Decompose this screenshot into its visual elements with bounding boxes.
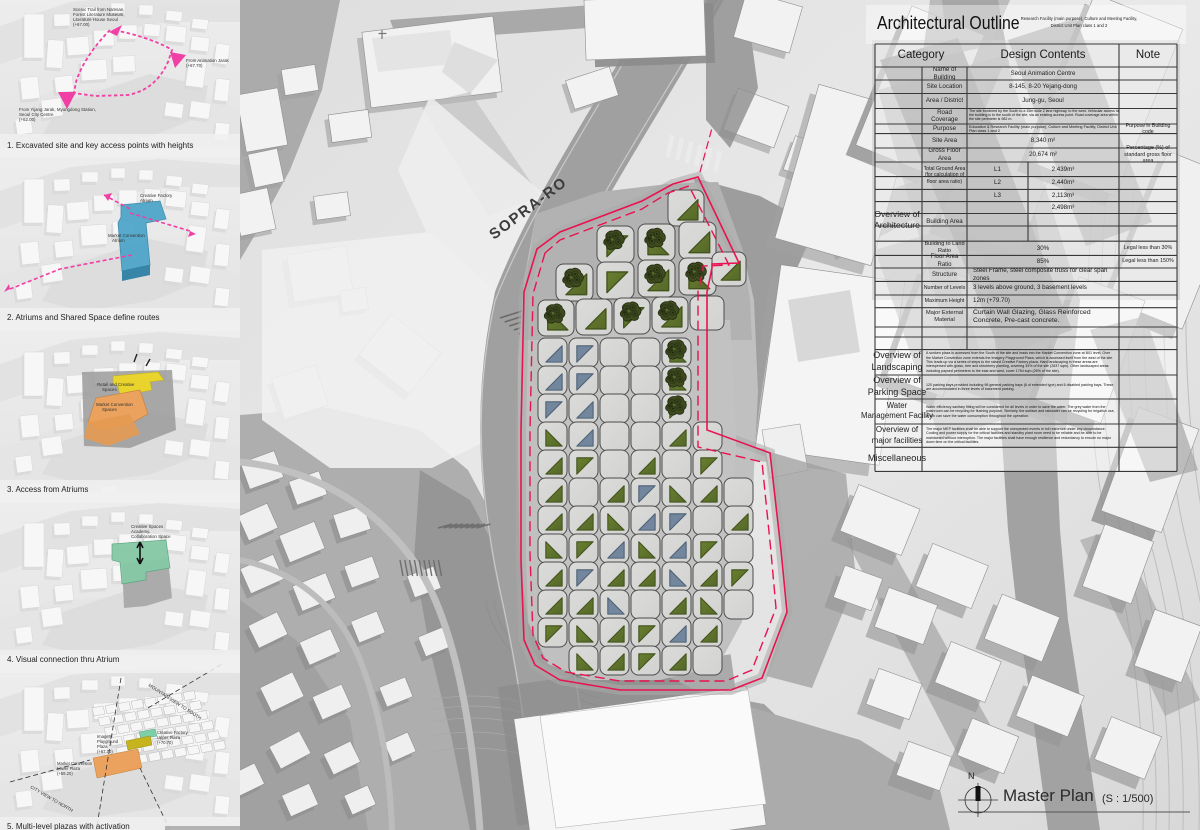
svg-text:(+70.70): (+70.70) <box>157 740 173 745</box>
svg-text:Atrium: Atrium <box>140 198 153 203</box>
svg-text:Collaboration Space: Collaboration Space <box>131 534 171 539</box>
svg-text:(+67.70): (+67.70) <box>186 63 203 68</box>
svg-text:Spaces: Spaces <box>102 387 117 392</box>
svg-text:(+62.00): (+62.00) <box>19 117 36 122</box>
svg-text:(+59.20): (+59.20) <box>57 771 73 776</box>
svg-text:(+67.70): (+67.70) <box>97 749 113 754</box>
svg-text:(+67.00): (+67.00) <box>73 22 90 27</box>
svg-text:Spaces: Spaces <box>102 407 117 412</box>
svg-text:Atrium: Atrium <box>112 238 125 243</box>
